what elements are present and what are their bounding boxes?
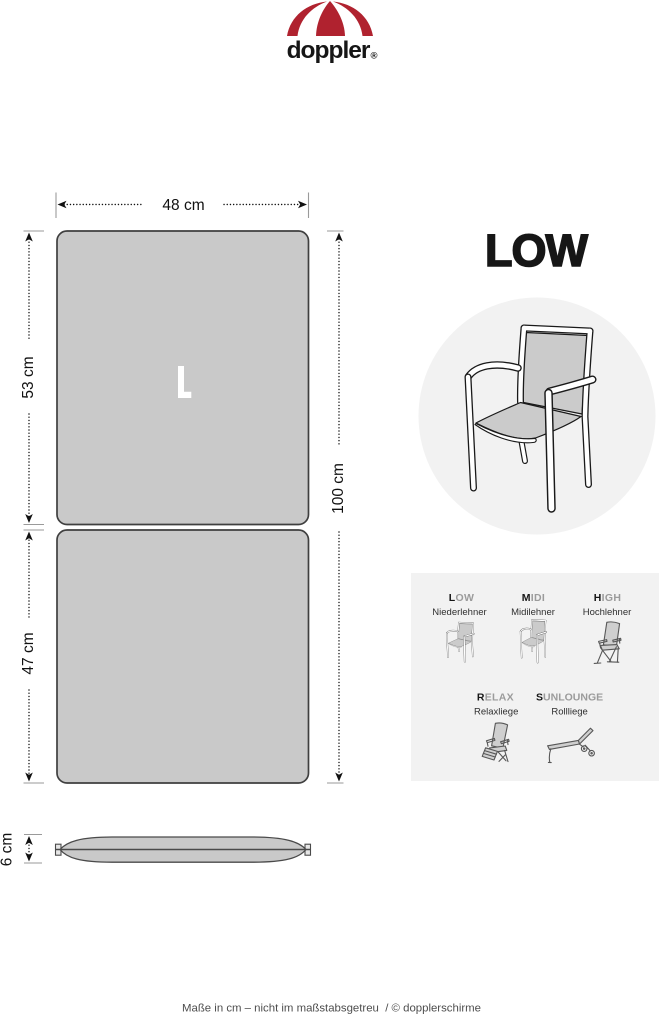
svg-text:®: ® [371,51,378,62]
svg-text:doppler: doppler [287,37,371,64]
svg-text:Relaxliege: Relaxliege [474,706,518,717]
svg-text:Midilehner: Midilehner [511,607,555,618]
svg-text:53 cm: 53 cm [20,356,37,398]
svg-text:MIDI: MIDI [522,592,545,604]
svg-text:Niederlehner: Niederlehner [432,607,486,618]
svg-text:SUNLOUNGE: SUNLOUNGE [536,691,603,703]
svg-text:47 cm: 47 cm [20,632,37,674]
svg-text:LOW: LOW [449,592,474,604]
svg-text:6 cm: 6 cm [0,833,16,867]
svg-text:100 cm: 100 cm [330,463,347,514]
svg-text:Rollliege: Rollliege [551,706,587,717]
svg-text:LOW: LOW [485,225,588,276]
svg-text:48 cm: 48 cm [162,197,204,214]
svg-text:Hochlehner: Hochlehner [583,607,632,618]
svg-text:RELAX: RELAX [477,691,514,703]
svg-text:HIGH: HIGH [594,592,621,604]
svg-text:Maße in cm – nicht im maßstabs: Maße in cm – nicht im maßstabsgetreu / ©… [182,1003,481,1015]
